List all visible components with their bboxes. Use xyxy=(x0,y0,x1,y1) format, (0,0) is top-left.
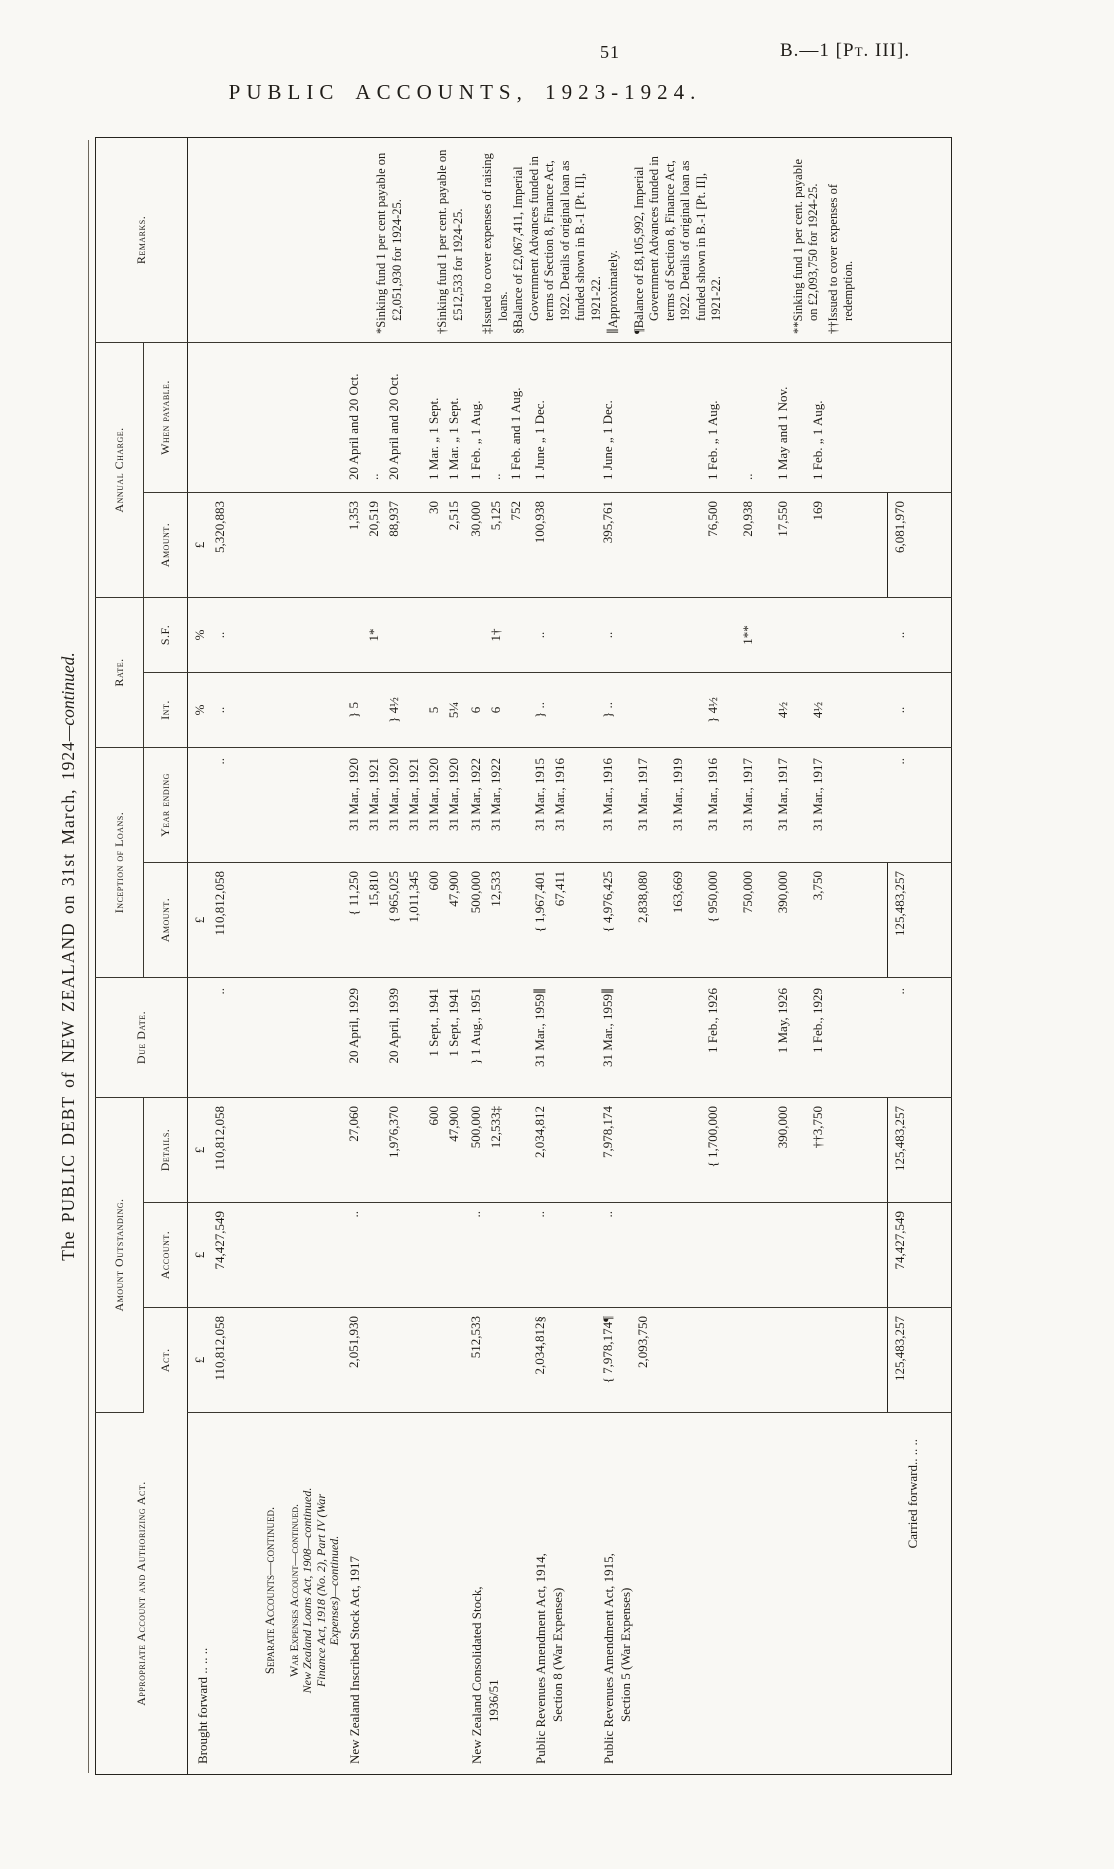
when-value: 1 June „ 1 Dec. xyxy=(598,343,618,492)
cell-appropriate-account: Public Revenues Amendment Act, 1915,Sect… xyxy=(596,1413,888,1775)
int-value: .. xyxy=(210,673,230,747)
due-value: 31 Mar., 1959∥ xyxy=(598,978,618,1097)
inc-value: 1,011,345 xyxy=(404,863,424,977)
rotated-table-block: The PUBLIC DEBT of NEW ZEALAND on 31st M… xyxy=(48,138,953,1775)
account-value xyxy=(550,1203,570,1307)
int-value: 4½ xyxy=(808,673,828,747)
cell-appropriate-account: New Zealand Consolidated Stock,1936/51 xyxy=(464,1413,528,1775)
inc-value: 110,812,058 xyxy=(210,863,230,977)
account-value xyxy=(738,1203,758,1307)
int-value: } 4½ xyxy=(384,673,404,747)
cell-year: 31 Mar., 192031 Mar., 192131 Mar., 19203… xyxy=(342,747,464,862)
ann-value: 5,320,883 xyxy=(210,493,230,597)
act-value: 110,812,058 xyxy=(210,1308,230,1412)
ann-value: 2,515 xyxy=(444,493,464,597)
col-group-inception-of-loans: Inception of Loans. xyxy=(96,747,144,977)
cell-act: 2,051,930 xyxy=(342,1308,464,1413)
cell-int: } 5 } 4½ 55¼ xyxy=(342,672,464,747)
year-value: 31 Mar., 1916 xyxy=(703,748,723,862)
act-value xyxy=(773,1308,793,1412)
cell-due: 31 Mar., 1959∥ 1 Feb., 1926 1 May, 19261… xyxy=(596,978,888,1098)
cell-account: .. xyxy=(464,1203,528,1308)
ann-value: 100,938 xyxy=(530,493,550,597)
cell-inc: { 1,967,40167,411 xyxy=(528,863,596,978)
ann-value xyxy=(550,493,570,597)
table-row-public-revenues-amendment-act-1914: Public Revenues Amendment Act, 1914,Sect… xyxy=(528,137,596,1774)
table-row-brought-forward: Brought forward .. .. ..£110,812,058£74,… xyxy=(188,137,258,1774)
cell-details: 27,060 1,976,370 60047,900 xyxy=(342,1098,464,1203)
account-value xyxy=(384,1203,404,1307)
cell-appropriate-account: War Expenses Account—continued.New Zeala… xyxy=(284,1413,342,1775)
year-value: .. xyxy=(890,748,910,862)
inc-value: 3,750 xyxy=(808,863,828,977)
int-value xyxy=(668,673,688,747)
year-value: 31 Mar., 1917 xyxy=(773,748,793,862)
inc-value: 47,900 xyxy=(444,863,464,977)
footnote: *Sinking fund 1 per cent payable on £2,0… xyxy=(374,144,405,334)
cell-sf: %.. xyxy=(188,597,258,672)
sf-value: .. xyxy=(598,598,618,672)
footnote: ¶Balance of £8,105,992, Imperial Governm… xyxy=(632,144,725,334)
col-header-when-payable: When payable. xyxy=(144,342,188,492)
int-value xyxy=(404,673,424,747)
ann-value: 76,500 xyxy=(703,493,723,597)
page-header: 51 B.—1 [Pt. III]. PUBLIC ACCOUNTS, 1923… xyxy=(0,0,1114,120)
act-value xyxy=(703,1308,723,1412)
table-body: Brought forward .. .. ..£110,812,058£74,… xyxy=(188,137,952,1774)
act-value xyxy=(486,1308,506,1412)
inc-value: 750,000 xyxy=(738,863,758,977)
col-header-annual-amount: Amount. xyxy=(144,492,188,597)
col-group-annual-charge: Annual Charge. xyxy=(96,342,144,597)
cell-act: 512,533 xyxy=(464,1308,528,1413)
account-label-line: Expenses)—continued. xyxy=(328,1417,342,1764)
account-label-line: War Expenses Account—continued. xyxy=(288,1417,302,1764)
when-value: 1 Mar. „ 1 Sept. xyxy=(444,343,464,492)
inc-value: 390,000 xyxy=(773,863,793,977)
act-value xyxy=(404,1308,424,1412)
sf-value xyxy=(404,598,424,672)
details-value: 12,533‡ xyxy=(486,1098,506,1202)
cell-year: .. xyxy=(188,747,258,862)
col-group-rate: Rate. xyxy=(96,597,144,747)
account-value: 74,427,549 xyxy=(210,1203,230,1307)
int-value xyxy=(633,673,653,747)
table-header: Appropriate Account and Authorizing Act.… xyxy=(96,137,188,1774)
details-value xyxy=(633,1098,653,1202)
year-value: 31 Mar., 1916 xyxy=(598,748,618,862)
cell-year: 31 Mar., 192231 Mar., 1922 xyxy=(464,747,528,862)
act-value: { 7,978,174¶ xyxy=(598,1308,618,1412)
account-label-line: New Zealand Loans Act, 1908—continued. xyxy=(301,1417,315,1764)
year-value: 31 Mar., 1917 xyxy=(808,748,828,862)
details-value: 600 xyxy=(424,1098,444,1202)
table-row-nz-consolidated-stock-1936-51: New Zealand Consolidated Stock,1936/5151… xyxy=(464,137,528,1774)
cell-details: 125,483,257 xyxy=(888,1098,952,1203)
details-value: 1,976,370 xyxy=(384,1098,404,1202)
inc-value: 2,838,080 xyxy=(633,863,653,977)
scanned-ledger-page: { "page": { "number": "51", "doc_ref": "… xyxy=(0,0,1114,1869)
inc-value: 67,411 xyxy=(550,863,570,977)
year-value: .. xyxy=(210,748,230,862)
cell-int: } .. xyxy=(528,672,596,747)
when-value: 1 Mar. „ 1 Sept. xyxy=(424,343,444,492)
account-value xyxy=(486,1203,506,1307)
cell-act: { 7,978,174¶2,093,750 xyxy=(596,1308,888,1413)
act-value xyxy=(668,1308,688,1412)
due-value xyxy=(404,978,424,1097)
col-header-remarks: Remarks. xyxy=(96,137,188,342)
account-value: £ xyxy=(190,1203,210,1307)
details-value xyxy=(550,1098,570,1202)
account-value: .. xyxy=(344,1203,364,1307)
cell-year: 31 Mar., 191531 Mar., 1916 xyxy=(528,747,596,862)
act-value: 2,034,812§ xyxy=(530,1308,550,1412)
inc-value: { 4,976,425 xyxy=(598,863,618,977)
cell-year xyxy=(284,747,342,862)
cell-ann xyxy=(258,492,284,597)
inc-value: { 11,250 xyxy=(344,863,364,977)
sf-value xyxy=(344,598,364,672)
col-header-inception-amount: Amount. xyxy=(144,863,188,978)
ann-value: 88,937 xyxy=(384,493,404,597)
act-value xyxy=(444,1308,464,1412)
account-value xyxy=(633,1203,653,1307)
due-value xyxy=(550,978,570,1097)
account-label-line: 1936/51 xyxy=(485,1417,502,1764)
year-value: 31 Mar., 1920 xyxy=(444,748,464,862)
cell-year: 31 Mar., 191631 Mar., 191731 Mar., 19193… xyxy=(596,747,888,862)
sf-value xyxy=(550,598,570,672)
document-reference: B.—1 [Pt. III]. xyxy=(780,40,910,62)
when-value xyxy=(890,343,910,492)
cell-details: 7,978,174 { 1,700,000 390,000††3,750 xyxy=(596,1098,888,1203)
cell-inc: 125,483,257 xyxy=(888,863,952,978)
account-label-line: Finance Act, 1918 (No. 2), Part IV (War xyxy=(315,1417,329,1764)
cell-ann: 100,938 xyxy=(528,492,596,597)
int-value: 5¼ xyxy=(444,673,464,747)
int-value xyxy=(550,673,570,747)
cell-account: 74,427,549 xyxy=(888,1203,952,1308)
cell-act: 125,483,257 xyxy=(888,1308,952,1413)
int-value xyxy=(506,673,526,747)
inc-value: 125,483,257 xyxy=(890,863,910,977)
account-label-line: New Zealand Inscribed Stock Act, 1917 xyxy=(346,1417,363,1764)
account-label-line: Section 8 (War Expenses) xyxy=(549,1417,566,1764)
page-title: PUBLIC ACCOUNTS, 1923-1924. xyxy=(120,80,810,105)
due-value: 1 Sept., 1941 xyxy=(424,978,444,1097)
due-value: 1 Feb., 1929 xyxy=(808,978,828,1097)
act-value xyxy=(384,1308,404,1412)
act-value xyxy=(424,1308,444,1412)
due-value xyxy=(506,978,526,1097)
cell-year: .. xyxy=(888,747,952,862)
col-header-act: Act. xyxy=(144,1308,188,1413)
account-value xyxy=(506,1203,526,1307)
year-value: 31 Mar., 1915 xyxy=(530,748,550,862)
when-value: 1 Feb. „ 1 Aug. xyxy=(703,343,723,492)
when-value xyxy=(190,343,210,492)
cell-inc: 500,00012,533 xyxy=(464,863,528,978)
due-value xyxy=(633,978,653,1097)
year-value: 31 Mar., 1919 xyxy=(668,748,688,862)
footnote: **Sinking fund 1 per cent. payable on £2… xyxy=(791,144,822,334)
details-value: 47,900 xyxy=(444,1098,464,1202)
sf-value xyxy=(424,598,444,672)
due-value xyxy=(364,978,384,1097)
when-value xyxy=(550,343,570,492)
ann-value: 17,550 xyxy=(773,493,793,597)
sf-value xyxy=(633,598,653,672)
details-value xyxy=(506,1098,526,1202)
cell-year xyxy=(258,747,284,862)
account-value xyxy=(424,1203,444,1307)
cell-ann xyxy=(284,492,342,597)
cell-due xyxy=(258,978,284,1098)
details-value: { 1,700,000 xyxy=(703,1098,723,1202)
ann-value: 20,519 xyxy=(364,493,384,597)
inc-value: £ xyxy=(190,863,210,977)
when-value: 1 Feb. „ 1 Aug. xyxy=(466,343,486,492)
sf-value xyxy=(703,598,723,672)
cell-act xyxy=(284,1308,342,1413)
due-value: } 1 Aug., 1951 xyxy=(466,978,486,1097)
year-value xyxy=(190,748,210,862)
cell-details: 500,00012,533‡ xyxy=(464,1098,528,1203)
int-value: 6 xyxy=(486,673,506,747)
when-value: 20 April and 20 Oct. xyxy=(344,343,364,492)
act-value: 2,051,930 xyxy=(344,1308,364,1412)
cell-ann: 30,0005,125752 xyxy=(464,492,528,597)
act-value xyxy=(738,1308,758,1412)
sf-value xyxy=(466,598,486,672)
year-value: 31 Mar., 1921 xyxy=(364,748,384,862)
sf-value xyxy=(808,598,828,672)
cell-account xyxy=(284,1203,342,1308)
year-value: 31 Mar., 1920 xyxy=(424,748,444,862)
cell-due: 31 Mar., 1959∥ xyxy=(528,978,596,1098)
details-value xyxy=(404,1098,424,1202)
cell-account: .. xyxy=(342,1203,464,1308)
table-row-nz-inscribed-stock-act-1917: New Zealand Inscribed Stock Act, 19172,0… xyxy=(342,137,464,1774)
int-value: } 4½ xyxy=(703,673,723,747)
details-value: 110,812,058 xyxy=(210,1098,230,1202)
int-value: } 5 xyxy=(344,673,364,747)
details-value: ††3,750 xyxy=(808,1098,828,1202)
int-value: % xyxy=(190,673,210,747)
table-row-war-expenses-heading: War Expenses Account—continued.New Zeala… xyxy=(284,137,342,1774)
details-value: 7,978,174 xyxy=(598,1098,618,1202)
when-value xyxy=(210,343,230,492)
footnote: ††Issued to cover expenses of redemption… xyxy=(826,144,857,334)
ann-value: 395,761 xyxy=(598,493,618,597)
when-value: 1 May and 1 Nov. xyxy=(773,343,793,492)
cell-appropriate-account: Carried forward.. .. .. xyxy=(888,1413,952,1775)
when-value: 20 April and 20 Oct. xyxy=(384,343,404,492)
details-value: 2,034,812 xyxy=(530,1098,550,1202)
due-value: 20 April, 1939 xyxy=(384,978,404,1097)
cell-act: 2,034,812§ xyxy=(528,1308,596,1413)
inc-value: { 950,000 xyxy=(703,863,723,977)
sf-value xyxy=(773,598,793,672)
account-value: 74,427,549 xyxy=(890,1203,910,1307)
cell-sf: 1* xyxy=(342,597,464,672)
due-value: 31 Mar., 1959∥ xyxy=(530,978,550,1097)
cell-due: .. xyxy=(188,978,258,1098)
cell-account: £74,427,549 xyxy=(188,1203,258,1308)
when-value: .. xyxy=(364,343,384,492)
cell-due xyxy=(284,978,342,1098)
inc-value: 600 xyxy=(424,863,444,977)
year-value: 31 Mar., 1917 xyxy=(633,748,653,862)
year-value: 31 Mar., 1916 xyxy=(550,748,570,862)
details-value: 27,060 xyxy=(344,1098,364,1202)
ann-value xyxy=(668,493,688,597)
cell-when: 1 Feb. „ 1 Aug...1 Feb. and 1 Aug. xyxy=(464,342,528,492)
cell-int: } .. } 4½ 4½4½ xyxy=(596,672,888,747)
sf-value xyxy=(444,598,464,672)
table-title-continued: —continued. xyxy=(58,652,78,741)
int-value xyxy=(364,673,384,747)
account-label-line: Separate Accounts—continued. xyxy=(262,1417,279,1764)
cell-int: %.. xyxy=(188,672,258,747)
cell-details xyxy=(284,1098,342,1203)
sf-value: 1* xyxy=(364,598,384,672)
cell-when xyxy=(258,342,284,492)
cell-details: 2,034,812 xyxy=(528,1098,596,1203)
cell-int: 66 xyxy=(464,672,528,747)
account-value xyxy=(703,1203,723,1307)
sf-value xyxy=(506,598,526,672)
account-value xyxy=(364,1203,384,1307)
col-header-details: Details. xyxy=(144,1098,188,1203)
sf-value xyxy=(384,598,404,672)
int-value: } .. xyxy=(530,673,550,747)
when-value: .. xyxy=(486,343,506,492)
col-header-year-ending: Year ending xyxy=(144,747,188,862)
account-label-line: Public Revenues Amendment Act, 1914, xyxy=(532,1417,549,1764)
footnote: ‡Issued to cover expenses of raising loa… xyxy=(480,144,511,334)
cell-ann: £5,320,883 xyxy=(188,492,258,597)
ann-value: 5,125 xyxy=(486,493,506,597)
int-value: .. xyxy=(890,673,910,747)
int-value: 4½ xyxy=(773,673,793,747)
due-value: .. xyxy=(210,978,230,1097)
year-value: 31 Mar., 1922 xyxy=(466,748,486,862)
act-value xyxy=(550,1308,570,1412)
year-value xyxy=(506,748,526,862)
cell-due: .. xyxy=(888,978,952,1098)
sf-value: % xyxy=(190,598,210,672)
cell-appropriate-account: Separate Accounts—continued. xyxy=(258,1413,284,1775)
due-value xyxy=(738,978,758,1097)
when-value: 1 Feb. and 1 Aug. xyxy=(506,343,526,492)
act-value: 2,093,750 xyxy=(633,1308,653,1412)
inc-value: 163,669 xyxy=(668,863,688,977)
due-value xyxy=(190,978,210,1097)
table-row-carried-forward: Carried forward.. .. ..125,483,25774,427… xyxy=(888,137,952,1774)
details-value: 500,000 xyxy=(466,1098,486,1202)
col-header-due-date: Due Date. xyxy=(96,978,188,1098)
act-value xyxy=(506,1308,526,1412)
inc-value: 15,810 xyxy=(364,863,384,977)
cell-sf: 1† xyxy=(464,597,528,672)
ann-value xyxy=(404,493,424,597)
ann-value: £ xyxy=(190,493,210,597)
cell-due: 20 April, 1929 20 April, 1939 1 Sept., 1… xyxy=(342,978,464,1098)
year-value: 31 Mar., 1920 xyxy=(344,748,364,862)
account-value: .. xyxy=(530,1203,550,1307)
inc-value xyxy=(506,863,526,977)
cell-details xyxy=(258,1098,284,1203)
account-value xyxy=(773,1203,793,1307)
ann-value: 30,000 xyxy=(466,493,486,597)
inc-value: { 1,967,401 xyxy=(530,863,550,977)
due-value xyxy=(486,978,506,1097)
year-value: 31 Mar., 1922 xyxy=(486,748,506,862)
cell-when xyxy=(284,342,342,492)
public-debt-table: Appropriate Account and Authorizing Act.… xyxy=(95,137,952,1775)
cell-sf: .. 1** xyxy=(596,597,888,672)
col-header-appropriate-account: Appropriate Account and Authorizing Act. xyxy=(96,1413,188,1775)
when-value: .. xyxy=(738,343,758,492)
account-label-line: Brought forward .. .. .. xyxy=(192,1417,211,1764)
cell-ann: 6,081,970 xyxy=(888,492,952,597)
page-number: 51 xyxy=(600,42,620,63)
table-title-text: The PUBLIC DEBT of NEW ZEALAND on 31st M… xyxy=(58,741,78,1261)
cell-sf: .. xyxy=(888,597,952,672)
col-header-sf: S.F. xyxy=(144,597,188,672)
details-value: 390,000 xyxy=(773,1098,793,1202)
int-value: 6 xyxy=(466,673,486,747)
cell-sf xyxy=(258,597,284,672)
act-value xyxy=(364,1308,384,1412)
sf-value: 1** xyxy=(738,598,758,672)
cell-inc xyxy=(284,863,342,978)
account-label-line: Public Revenues Amendment Act, 1915, xyxy=(600,1417,617,1764)
ann-value: 169 xyxy=(808,493,828,597)
table-title: The PUBLIC DEBT of NEW ZEALAND on 31st M… xyxy=(48,138,88,1775)
cell-act: £110,812,058 xyxy=(188,1308,258,1413)
account-value xyxy=(444,1203,464,1307)
sf-value: 1† xyxy=(486,598,506,672)
cell-ann: 1,35320,51988,937 302,515 xyxy=(342,492,464,597)
cell-sf: .. xyxy=(528,597,596,672)
cell-int xyxy=(258,672,284,747)
cell-appropriate-account: New Zealand Inscribed Stock Act, 1917 xyxy=(342,1413,464,1775)
ann-value: 6,081,970 xyxy=(890,493,910,597)
col-header-account: Account. xyxy=(144,1203,188,1308)
details-value: 125,483,257 xyxy=(890,1098,910,1202)
top-rule xyxy=(88,140,89,1773)
cell-int: .. xyxy=(888,672,952,747)
due-value: 1 May, 1926 xyxy=(773,978,793,1097)
act-value: £ xyxy=(190,1308,210,1412)
cell-inc xyxy=(258,863,284,978)
sf-value: .. xyxy=(530,598,550,672)
details-value xyxy=(668,1098,688,1202)
account-value xyxy=(668,1203,688,1307)
account-value xyxy=(404,1203,424,1307)
account-label-line: New Zealand Consolidated Stock, xyxy=(468,1417,485,1764)
when-value xyxy=(404,343,424,492)
cell-remarks: *Sinking fund 1 per cent payable on £2,0… xyxy=(188,137,952,342)
details-value xyxy=(738,1098,758,1202)
footnote: ∥Approximately. xyxy=(606,144,622,334)
year-value: 31 Mar., 1921 xyxy=(404,748,424,862)
when-value xyxy=(633,343,653,492)
cell-account: .. xyxy=(596,1203,888,1308)
